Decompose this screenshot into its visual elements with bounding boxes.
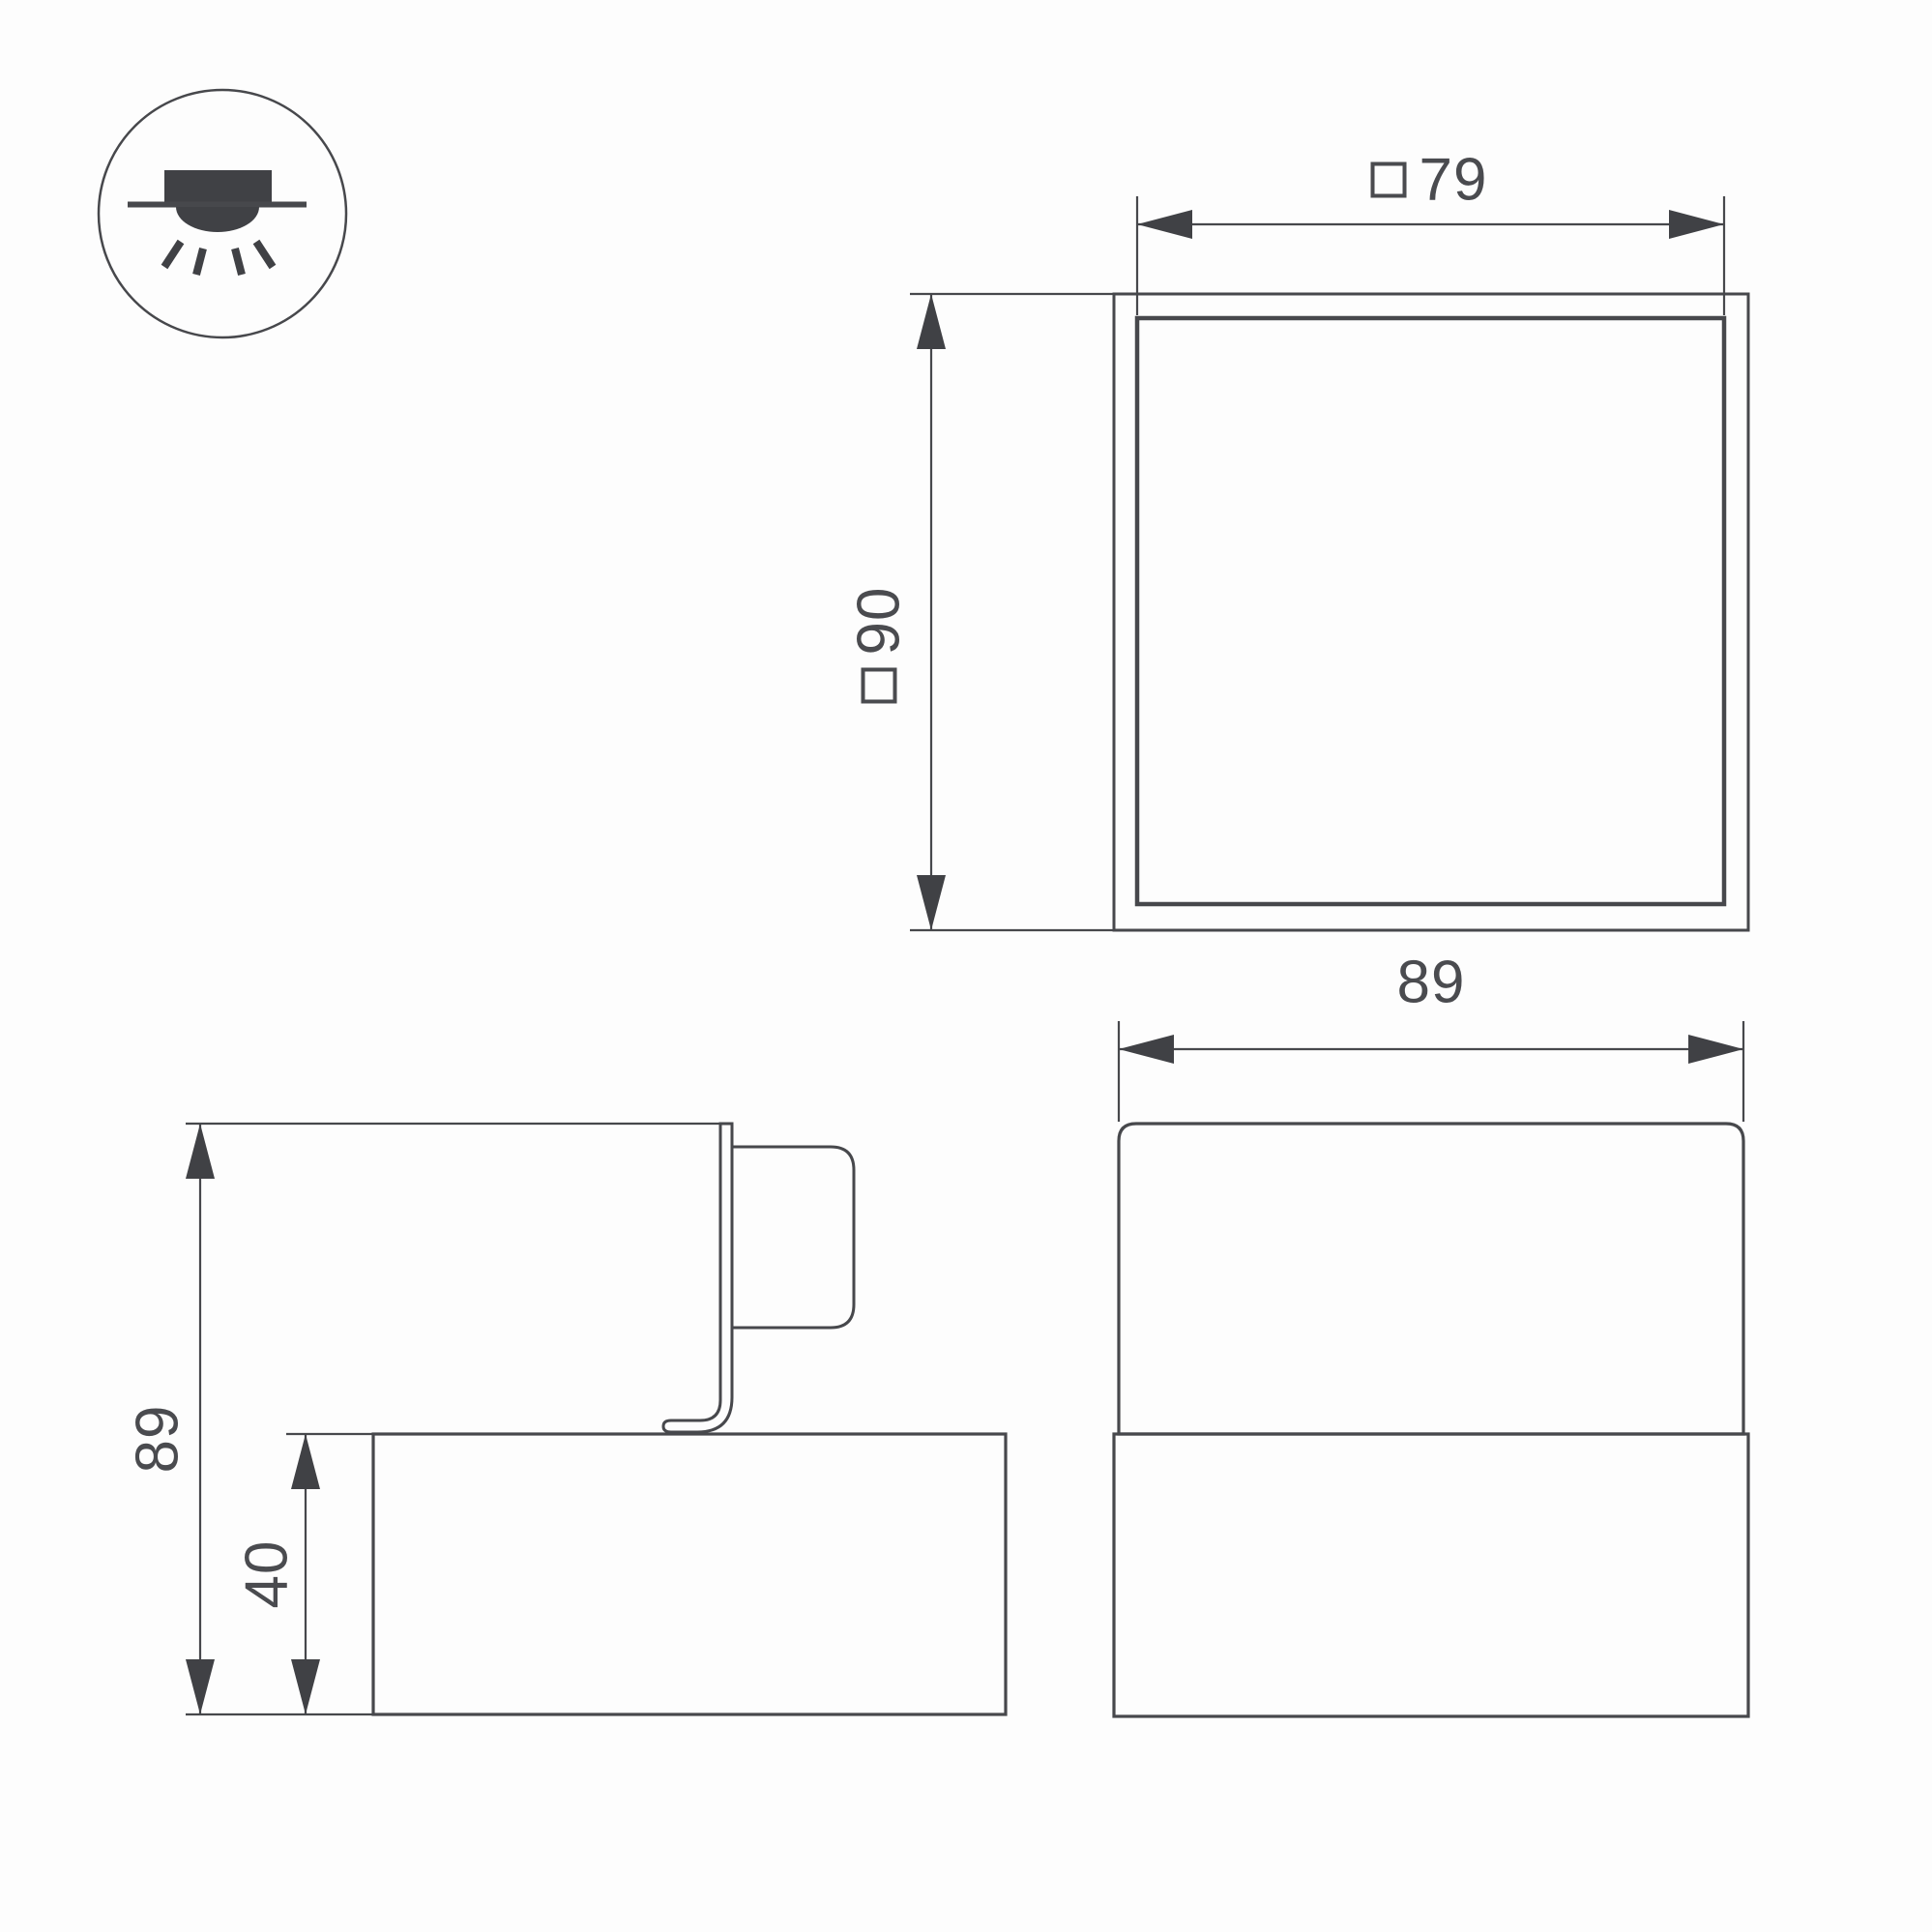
- arrowhead: [917, 875, 946, 930]
- front-view-width-dimension: [1119, 1021, 1743, 1122]
- icon-light-rays: [164, 242, 273, 275]
- front-view: [1114, 1021, 1748, 1716]
- surface-mounted-downlight-icon: [99, 90, 346, 337]
- icon-lamp-dome: [176, 207, 259, 232]
- dimension-value: 90: [845, 587, 914, 656]
- arrowhead: [186, 1124, 215, 1179]
- side-view-mounting-bracket: [663, 1124, 732, 1432]
- dimension-value: 79: [1420, 146, 1488, 215]
- front-view-base-body: [1114, 1434, 1748, 1716]
- side-view-base-height-label: 40: [233, 1540, 302, 1609]
- icon-fixture-body: [164, 170, 272, 202]
- dimension-value: 89: [1397, 949, 1466, 1017]
- arrowhead: [1669, 210, 1724, 239]
- front-view-width-label: 89: [1397, 949, 1466, 1017]
- arrowhead: [1137, 210, 1192, 239]
- top-view: [910, 196, 1748, 930]
- dimension-value: 89: [124, 1405, 192, 1474]
- dimension-value: 40: [233, 1540, 302, 1609]
- top-view-height-label: 90: [845, 587, 914, 704]
- square-symbol: [1371, 162, 1407, 198]
- side-view: [186, 1124, 1006, 1714]
- arrowhead: [291, 1659, 320, 1714]
- top-view-height-dimension: [910, 294, 1114, 930]
- arrowhead: [1688, 1035, 1743, 1064]
- front-view-lamp-head: [1119, 1124, 1743, 1434]
- arrowhead: [917, 294, 946, 349]
- arrowhead: [1119, 1035, 1174, 1064]
- square-symbol: [862, 667, 897, 703]
- top-view-width-label: 79: [1371, 146, 1488, 215]
- side-view-base-body: [373, 1434, 1006, 1714]
- top-view-inner-square: [1137, 318, 1724, 904]
- top-view-outer-square: [1114, 294, 1748, 930]
- arrowhead: [186, 1659, 215, 1714]
- drawing-sheet: 79 90 89 40 89: [0, 0, 1932, 1932]
- side-view-total-height-dimension: [186, 1124, 723, 1714]
- side-view-total-height-label: 89: [124, 1405, 192, 1474]
- side-view-connector-box: [732, 1147, 854, 1328]
- drawing-linework: [0, 0, 1932, 1932]
- arrowhead: [291, 1434, 320, 1489]
